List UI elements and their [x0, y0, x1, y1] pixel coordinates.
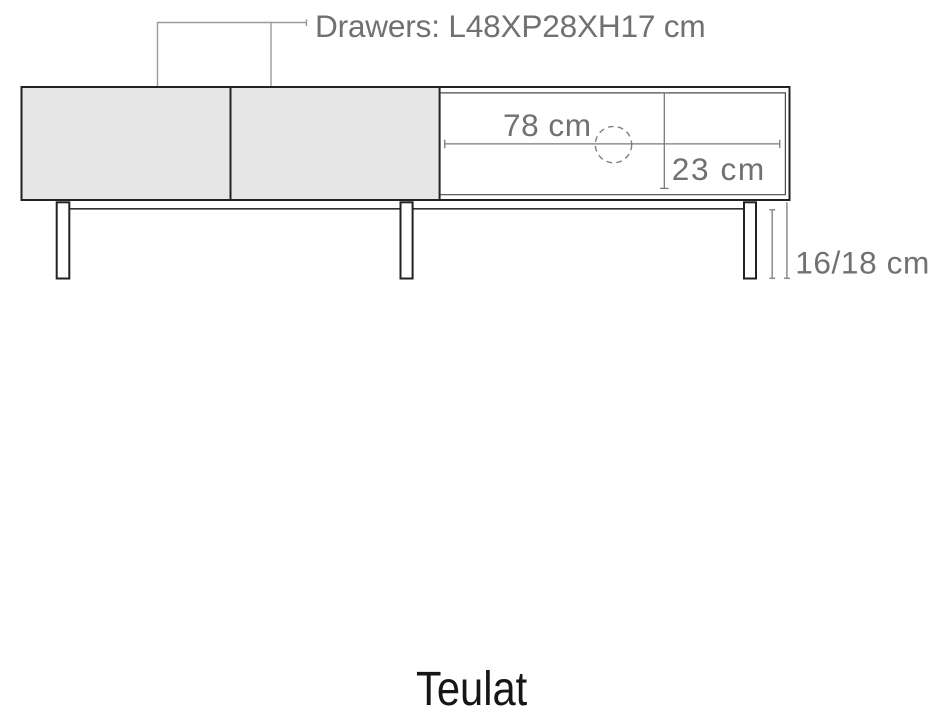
svg-text:23 cm: 23 cm [672, 151, 766, 187]
svg-text:16/18 cm: 16/18 cm [795, 245, 930, 281]
svg-text:Teulat: Teulat [416, 661, 528, 716]
svg-text:Drawers: L48XP28XH17 cm: Drawers: L48XP28XH17 cm [315, 8, 706, 44]
svg-text:78 cm: 78 cm [503, 107, 592, 143]
